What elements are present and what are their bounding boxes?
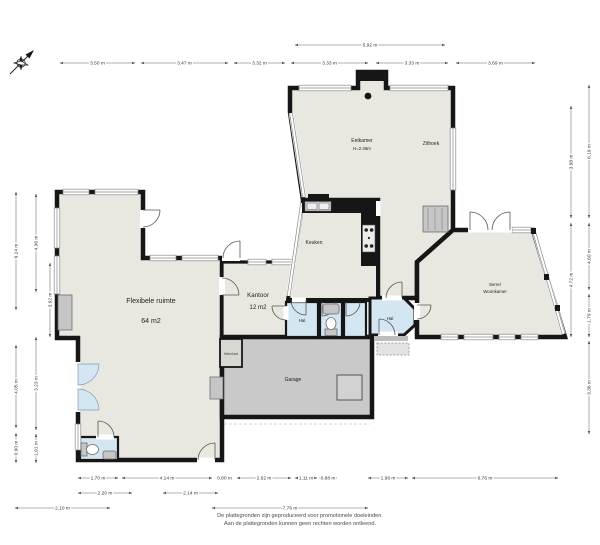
toilet-icon [81,443,99,456]
floor-plan-page: Eetkamer H=2.46m Zithoek Keuken Kantoor … [0,0,600,545]
footer-disclaimer: De plattegronden zijn geproduceerd voor … [0,513,600,528]
stove-flue [365,93,372,100]
room-label-zithoek: Zithoek [423,141,440,147]
dimension-line: 3.32 m [234,61,285,67]
dimension-line: 3.33 m [291,61,368,67]
dimension-line: 0.88 m [319,476,337,482]
dimension-line: 2.10 m [15,506,110,512]
svg-text:2.10 m: 2.10 m [55,506,70,512]
doormat [377,343,409,355]
room-label-flexibele: Flexibele ruimte [126,298,176,305]
svg-text:2.14 m: 2.14 m [183,491,198,497]
svg-text:1.79 m: 1.79 m [587,308,593,323]
svg-text:3.33 m: 3.33 m [322,61,337,67]
svg-text:3.33 m: 3.33 m [405,61,420,67]
svg-text:3.47 m: 3.47 m [177,61,192,67]
svg-text:3.98 m: 3.98 m [569,155,575,170]
svg-text:4.14 m: 4.14 m [160,476,175,482]
dimension-line: 3.98 m [569,106,575,218]
room-storage-middle [344,302,366,337]
dimension-line: 3.50 m [60,61,135,67]
dimension-line: 4.72 m [569,223,575,337]
radiator [423,206,448,232]
skylight [337,375,362,400]
dimension-line: 0.90 m [14,433,20,463]
dimension-line: 3.23 m [34,337,40,430]
svg-text:2.62 m: 2.62 m [257,476,272,482]
svg-text:0.80 m: 0.80 m [217,476,232,482]
room-label-eetkamer: Eetkamer [351,138,373,144]
sink-icon [323,304,339,314]
svg-text:3.23 m: 3.23 m [34,376,40,391]
dimension-line: 6.76 m [412,476,558,482]
svg-text:4.72 m: 4.72 m [569,273,575,288]
toilet-icon [325,318,337,336]
dimension-line: 3.47 m [141,61,228,67]
dimension-line: 4.36 m [34,194,40,292]
sink-icon [103,451,116,459]
room-flexibele-ruimte [57,192,222,460]
room-label-serre-2: Woonkamer [483,289,507,294]
dimension-line: 6.19 m [587,85,593,218]
dimension-line: 5.92 m [295,43,445,49]
dimension-line: 3.69 m [456,61,535,67]
svg-text:4.36 m: 4.36 m [34,236,40,251]
svg-text:3.32 m: 3.32 m [252,61,267,67]
sink-icon [305,202,331,212]
rooms [57,72,565,460]
dimension-line: 2.14 m [163,491,218,497]
dimension-line: 0.80 m [216,476,233,482]
svg-text:1.91 m: 1.91 m [34,441,40,456]
svg-text:0.88 m: 0.88 m [321,476,336,482]
room-label-kantoor: Kantoor [247,292,269,299]
room-label-flexibele-area: 64 m2 [141,318,161,325]
svg-text:0.90 m: 0.90 m [14,441,20,456]
dimension-line: 3.92 m [48,263,54,337]
compass-icon [10,50,34,74]
dimension-line: 4.60 m [587,223,593,290]
room-label-garage: Garage [285,377,302,383]
svg-text:4.60 m: 4.60 m [587,249,593,264]
svg-text:1.70 m: 1.70 m [91,476,106,482]
dimension-line: 3.36 m [587,341,593,434]
svg-text:1.11 m: 1.11 m [299,476,313,482]
dimension-line: 7.76 m [212,506,368,512]
disclaimer-line-2: Aan de plattegronden kunnen geen rechten… [0,521,600,529]
disclaimer-line-1: De plattegronden zijn geproduceerd voor … [0,513,600,521]
dimension-line: 2.20 m [78,491,132,497]
dimension-line: 2.62 m [237,476,291,482]
svg-text:2.20 m: 2.20 m [98,491,113,497]
svg-text:3.69 m: 3.69 m [488,61,503,67]
entrance-step [374,336,408,341]
dimension-line: 1.79 m [587,294,593,337]
svg-text:7.76 m: 7.76 m [283,506,298,512]
dimension-line: 1.91 m [34,434,40,463]
svg-text:4.05 m: 4.05 m [14,379,20,394]
dimension-line: 9.24 m [14,192,20,310]
dimension-line: 1.70 m [78,476,118,482]
svg-text:1.98 m: 1.98 m [381,476,396,482]
svg-text:3.36 m: 3.36 m [587,380,593,395]
dimension-line: 3.33 m [376,61,448,67]
svg-text:6.19 m: 6.19 m [587,144,593,159]
door-arc [492,212,510,230]
room-label-hal-left: Hal [299,318,306,323]
svg-text:9.24 m: 9.24 m [14,244,20,259]
fireplace-block [210,377,223,399]
door-arc [470,212,488,230]
room-label-serre-1: Serre/ [489,282,502,287]
svg-text:3.92 m: 3.92 m [48,293,54,308]
dimension-line: 1.11 m [295,476,317,482]
svg-text:6.76 m: 6.76 m [478,476,493,482]
fireplace-chimney [359,73,385,81]
room-label-hal-right: Hal [387,316,394,321]
dimension-line: 4.05 m [14,345,20,428]
room-label-kantoor-area: 12 m2 [249,304,267,311]
floor-plan: Eetkamer H=2.46m Zithoek Keuken Kantoor … [0,0,600,545]
stove-icon [363,225,376,252]
oven-icon [308,194,329,200]
room-label-meterkast: Meterkast [224,352,238,356]
dimension-line: 1.98 m [368,476,408,482]
room-label-keuken: Keuken [306,240,323,246]
svg-text:3.50 m: 3.50 m [90,61,105,67]
room-label-eetkamer-height: H=2.46m [353,146,371,151]
chimney-block [58,295,72,330]
svg-text:5.92 m: 5.92 m [363,43,378,49]
dimension-line: 4.14 m [122,476,212,482]
